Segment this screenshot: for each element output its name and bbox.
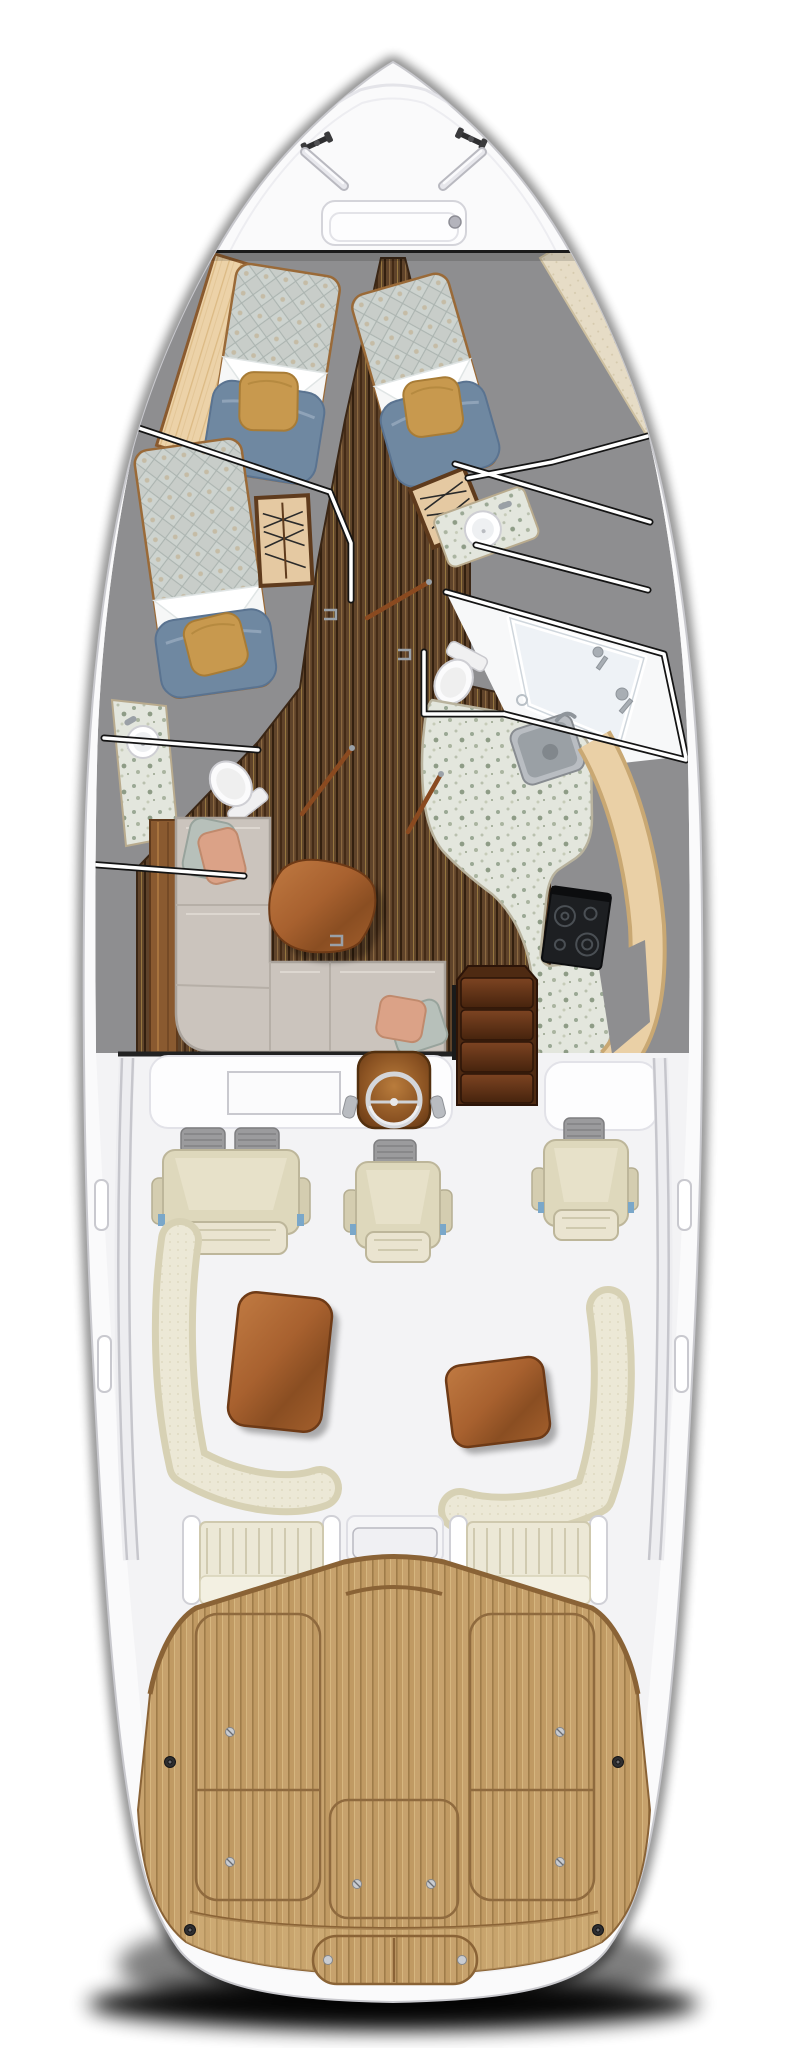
helm-and-cockpit xyxy=(95,966,691,1984)
anchor-locker-hatch xyxy=(322,201,466,245)
salon-coffee-table xyxy=(269,860,375,953)
transom-hatch xyxy=(313,1936,477,1984)
interior-cutaway xyxy=(86,229,694,1068)
yacht-floorplan xyxy=(0,0,787,2048)
hanging-locker-port xyxy=(256,495,313,586)
cockpit-table-starboard xyxy=(444,1355,558,1455)
companionway-stairs xyxy=(452,966,537,1105)
cockpit-teak-deck xyxy=(138,1557,650,1985)
instrument-panel xyxy=(228,1072,340,1114)
hatch-latch-icon xyxy=(449,216,461,228)
cooktop xyxy=(541,886,611,970)
salon-cabinet-port xyxy=(150,820,177,1053)
cockpit-table-port xyxy=(226,1290,340,1440)
floorplan-canvas xyxy=(0,0,787,2048)
